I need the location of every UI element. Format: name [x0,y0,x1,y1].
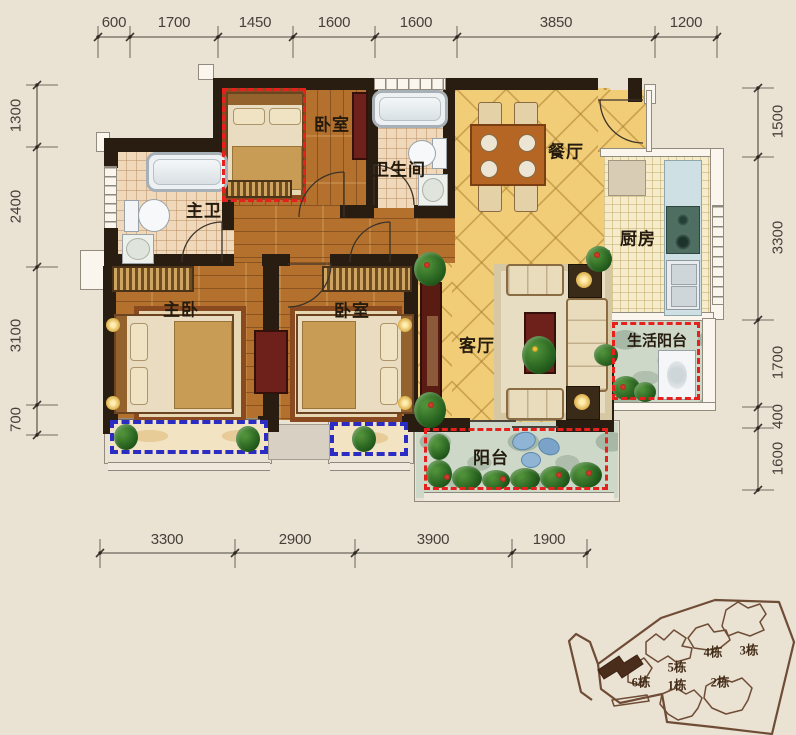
sink-bowl [671,264,697,285]
utility-balcony-right-wall [702,318,716,410]
master-bath-sink [122,234,154,264]
site-building-label-5: 5栋 [668,657,687,676]
dim-top-4: 1600 [307,14,361,31]
bedroom-top-wardrobe [352,92,368,160]
nightstand-lamp [398,396,412,410]
entry-side-wall [646,90,652,152]
between-bedrooms-cabinet [254,330,288,394]
sink-bowl [671,286,697,307]
flower [594,252,600,258]
master-toilet-tank [124,200,139,232]
sink-bowl [422,178,444,202]
bedroom2-bed [296,314,414,414]
floor-plan-page: { "plan": { "rooms": { "bedroom_top": "卧… [0,0,796,735]
flower [428,402,434,408]
dim-right-2: 3300 [770,211,787,265]
dim-left-2: 2400 [8,180,25,234]
master-bed [114,314,234,414]
wall-bath-bottom-right [414,205,455,218]
label-master-bedroom: 主卧 [163,296,199,321]
flower [532,346,538,352]
label-bathroom: 卫生间 [372,156,426,181]
nightstand-lamp [398,318,412,332]
sliding-door-leaf-1 [470,420,516,422]
bathtub-basin [153,159,221,185]
bay1-railing [108,462,270,471]
table-lamp [576,272,592,288]
dim-top-7: 1200 [659,14,713,31]
dim-left-4: 700 [8,393,25,447]
site-building-label-6: 6栋 [632,672,651,691]
corner-table [566,386,600,420]
site-building-label-1: 1栋 [668,675,687,694]
wall-entry-block [628,78,642,102]
wall-bath-bottom-left [340,205,374,218]
top-structure-step [198,64,214,80]
palm-plant [114,424,138,450]
plate [480,160,498,178]
nightstand-lamp [106,396,120,410]
master-toilet-bowl [138,199,170,232]
sink-bowl [126,238,150,260]
dim-top-3: 1450 [228,14,282,31]
dim-right-1: 1500 [770,95,787,149]
dim-top-2: 1700 [147,14,201,31]
flower [424,262,430,268]
bedroom-top-red-dash-zone [222,88,306,202]
label-utility-balcony: 生活阳台 [627,330,687,351]
dim-bottom-4: 1900 [522,531,576,548]
dim-left-3: 3100 [8,309,25,363]
burner [676,213,690,227]
pillow [130,323,148,361]
wall-left-1 [104,138,118,168]
bathtub-basin [379,97,441,121]
blanket [302,321,356,409]
dim-bottom-2: 2900 [268,531,322,548]
label-living: 客厅 [459,332,495,357]
wall-bedrooms-top-2 [262,254,290,266]
balcony-red-dash [424,428,608,490]
palm-plant [236,426,260,452]
tv-panel [427,316,438,386]
plate [480,134,498,152]
dim-left-1: 1300 [8,89,25,143]
dim-right-5: 1600 [770,432,787,486]
label-master-bath: 主卫 [186,197,222,222]
bay2-railing [330,462,410,471]
dim-top-6: 3850 [529,14,583,31]
label-kitchen: 厨房 [620,225,656,250]
burner [674,233,692,251]
wall-top-2 [446,78,598,90]
fridge [608,160,646,196]
dim-bottom-1: 3300 [140,531,194,548]
master-wardrobe [112,266,194,292]
table-lamp [574,394,590,410]
dining-table [470,124,546,186]
dim-top-5: 1600 [389,14,443,31]
plate [518,160,536,178]
pillow [380,323,398,361]
pillow [130,367,148,405]
label-bedroom-top: 卧室 [314,111,350,136]
nightstand-lamp [106,318,120,332]
masterbath-window [104,166,117,230]
stove [666,206,700,254]
palm-plant [352,426,376,452]
dim-bottom-3: 3900 [406,531,460,548]
label-dining: 餐厅 [548,138,584,163]
pillow [380,367,398,405]
utility-balcony-bottom-wall [604,402,716,411]
plant [522,336,556,374]
master-bathtub [146,152,228,192]
sofa-loveseat-bottom [506,388,564,420]
bedroom2-wardrobe [322,266,412,292]
plant [586,246,612,272]
dim-top-1: 600 [87,14,141,31]
balcony-railing [424,492,614,502]
bathroom-window [374,78,446,90]
plate [518,134,536,152]
dim-right-3: 1700 [770,336,787,390]
site-building-label-4: 4栋 [704,642,723,661]
kitchen-sink [666,260,700,310]
kitchen-window [712,205,724,305]
site-building-label-2: 2栋 [711,672,730,691]
dining-chair [514,184,538,212]
site-building-label-3: 3栋 [740,640,759,659]
label-balcony: 阳台 [473,444,509,469]
sofa-loveseat-top [506,264,564,296]
blanket [174,321,232,409]
dining-chair [478,184,502,212]
kitchen-top-wall [600,148,724,157]
plant [414,252,446,286]
plant [414,392,446,428]
label-bedroom2: 卧室 [334,297,370,322]
bathtub [372,90,448,128]
